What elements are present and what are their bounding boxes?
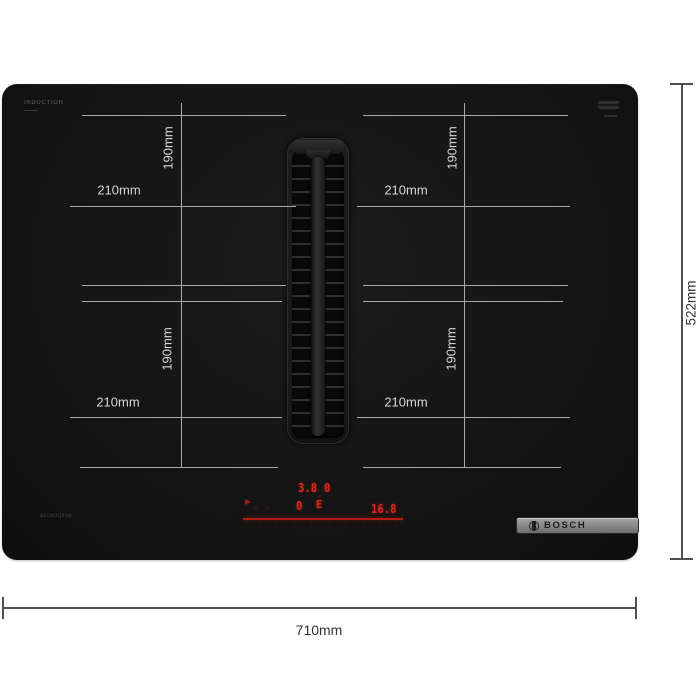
dots-icon: ·· <box>275 506 292 513</box>
dim-ext-topright-top <box>363 115 568 116</box>
hood-control-icons: ∗≡·· <box>253 506 292 513</box>
power-icon: ◌ <box>241 522 245 530</box>
slider-line <box>243 518 403 520</box>
dim-ext-topright-bottom <box>363 285 568 286</box>
zone-width-label-bottomleft: 210mm <box>96 395 139 410</box>
accentline-marking: accent|line <box>40 513 72 519</box>
slider-num: 6 <box>344 522 348 530</box>
dim-ext-bottomright-bottom <box>363 467 561 468</box>
depth-dim-label: 522mm <box>684 280 699 325</box>
aux-mark: ° <box>356 492 359 499</box>
induction-marking: INDUCTION <box>24 100 64 106</box>
slider-scale: ◌ 1 2 3 4 5 6 7 8 9 <box>241 522 399 530</box>
zone-width-label-topright: 210mm <box>384 183 427 198</box>
width-dim-tick-right <box>635 597 637 619</box>
fan-level-icon: ≡ <box>265 506 275 513</box>
slider-num: 1 <box>258 522 262 530</box>
power-display-c: 0 <box>296 501 302 512</box>
slider-num: 9 <box>395 522 399 530</box>
move-letter: E <box>312 499 326 510</box>
corner-marking-line2 <box>598 106 619 109</box>
induction-marking-underline <box>24 110 38 111</box>
zone-width-label-topleft: 210mm <box>97 183 140 198</box>
brand-badge: BOSCH <box>517 518 638 533</box>
corner-marking-underline <box>604 115 617 117</box>
bosch-logo-icon <box>529 521 539 531</box>
timer-display: 16.8 <box>371 504 396 515</box>
zone-width-label-bottomright: 210mm <box>384 395 427 410</box>
dim-210-bottomleft <box>70 417 282 418</box>
power-display-b: 0 <box>324 483 330 494</box>
vent-handle-bar <box>311 157 325 436</box>
depth-dim-tick-bottom <box>670 558 693 560</box>
product-diagram: INDUCTION accent|line 190mm 210mm 190mm … <box>0 0 700 700</box>
dim-210-topright <box>357 206 570 207</box>
dim-ext-bottomleft-bottom <box>80 467 278 468</box>
sparkle-icon: ∗ <box>253 506 265 513</box>
zone-height-label-bottomleft: 190mm <box>160 327 175 370</box>
slider-num: 4 <box>310 522 314 530</box>
width-dim-label: 710mm <box>296 622 343 638</box>
power-display-a: 3.8 <box>298 483 317 494</box>
brand-name: BOSCH <box>544 520 586 531</box>
slider-num: 3 <box>292 522 296 530</box>
dim-210-bottomright <box>357 417 570 418</box>
corner-marking-line1 <box>598 101 619 104</box>
dim-ext-bottomleft-top <box>82 301 282 302</box>
dim-ext-topleft-bottom <box>82 285 286 286</box>
zone-height-label-topleft: 190mm <box>161 126 176 169</box>
slider-num: 5 <box>327 522 331 530</box>
dim-ext-topleft-top <box>82 115 286 116</box>
dim-210-topleft <box>70 206 296 207</box>
depth-dim-tick-top <box>670 83 693 85</box>
zone-height-label-topright: 190mm <box>445 126 460 169</box>
width-dim-line <box>2 607 637 609</box>
slider-num: 8 <box>378 522 382 530</box>
slider-num: 7 <box>361 522 365 530</box>
slider-num: 2 <box>275 522 279 530</box>
dim-ext-bottomright-top <box>363 301 563 302</box>
zone-height-label-bottomright: 190mm <box>444 327 459 370</box>
width-dim-tick-left <box>2 597 4 619</box>
pointer-triangle-icon <box>245 499 251 505</box>
move-pot-indicator: → E <box>312 494 326 510</box>
